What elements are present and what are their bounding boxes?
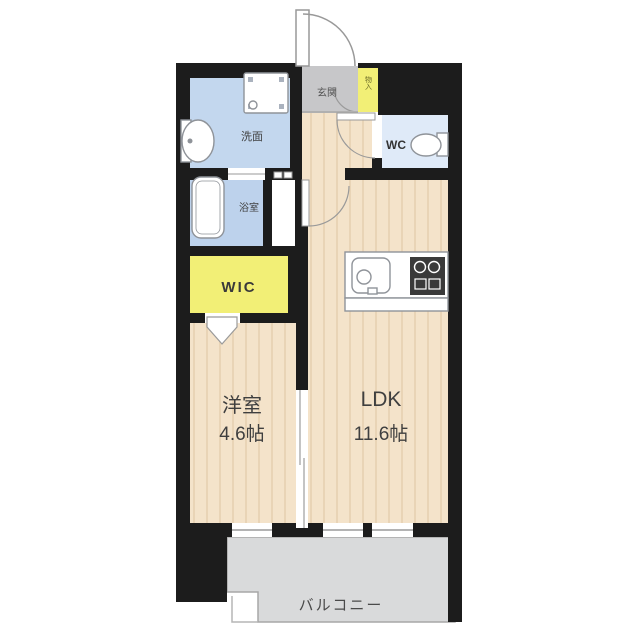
wc-door-leaf — [337, 113, 375, 120]
ldk-label: LDK — [361, 388, 402, 411]
washer-drain — [249, 101, 257, 109]
shoe-storage-label: 物入 — [365, 75, 373, 90]
senmen-label: 洗面 — [241, 130, 263, 143]
toilet-icon — [411, 134, 441, 156]
wall — [290, 78, 302, 180]
ldk-floor — [308, 180, 448, 523]
entrance-door-arc — [303, 14, 355, 66]
balcony-label: バルコニー — [299, 597, 384, 614]
wc-label: WC — [386, 138, 406, 152]
bath-door-bay — [272, 180, 295, 246]
balcony-step-line — [232, 596, 258, 622]
shoe-storage-floor — [358, 68, 378, 112]
wall — [363, 523, 372, 537]
wall — [413, 523, 448, 537]
washer-pan-corner — [279, 104, 284, 109]
sliding-door-partition — [296, 390, 308, 528]
bath-folding-door-tick — [274, 172, 282, 178]
kitchen-counter-base — [345, 298, 448, 311]
wall — [263, 180, 272, 246]
washer-pan-corner — [248, 77, 253, 82]
bedroom-size: 4.6帖 — [219, 423, 264, 445]
wall — [358, 63, 378, 68]
wall — [183, 523, 232, 537]
wall — [183, 246, 308, 256]
ldk-door-leaf — [302, 180, 309, 226]
bath-folding-door-tick — [284, 172, 292, 178]
entrance-door-leaf — [296, 10, 309, 66]
bedroom-floor — [190, 323, 296, 523]
bedroom-label: 洋室 — [222, 394, 262, 417]
wall — [448, 63, 462, 622]
wall — [375, 168, 448, 180]
wall — [296, 323, 308, 390]
kitchen-tap — [368, 288, 377, 294]
ldk-size: 11.6帖 — [354, 423, 409, 445]
bath-label: 浴室 — [239, 201, 259, 214]
wall — [240, 313, 308, 323]
bathtub-icon — [192, 177, 224, 238]
floorplan: 玄関 物入 洗面 WC 浴室 WIC 洋室 4.6帖 LDK 11.6帖 バルコ… — [0, 0, 640, 640]
sink-icon — [182, 120, 214, 162]
wall — [183, 313, 205, 323]
wall — [176, 535, 227, 602]
wall — [288, 256, 308, 313]
genkan-label: 玄関 — [317, 86, 337, 99]
wall — [372, 158, 382, 170]
wic-label: WIC — [221, 279, 256, 296]
wall — [378, 63, 448, 115]
hall-ldk-doorway-floor — [302, 166, 345, 180]
sink-tap — [188, 139, 193, 144]
floorplan-svg: 玄関 物入 洗面 WC 浴室 WIC 洋室 4.6帖 LDK 11.6帖 バルコ… — [0, 0, 640, 640]
washer-pan-corner — [279, 77, 284, 82]
kitchen-faucet — [357, 270, 371, 284]
